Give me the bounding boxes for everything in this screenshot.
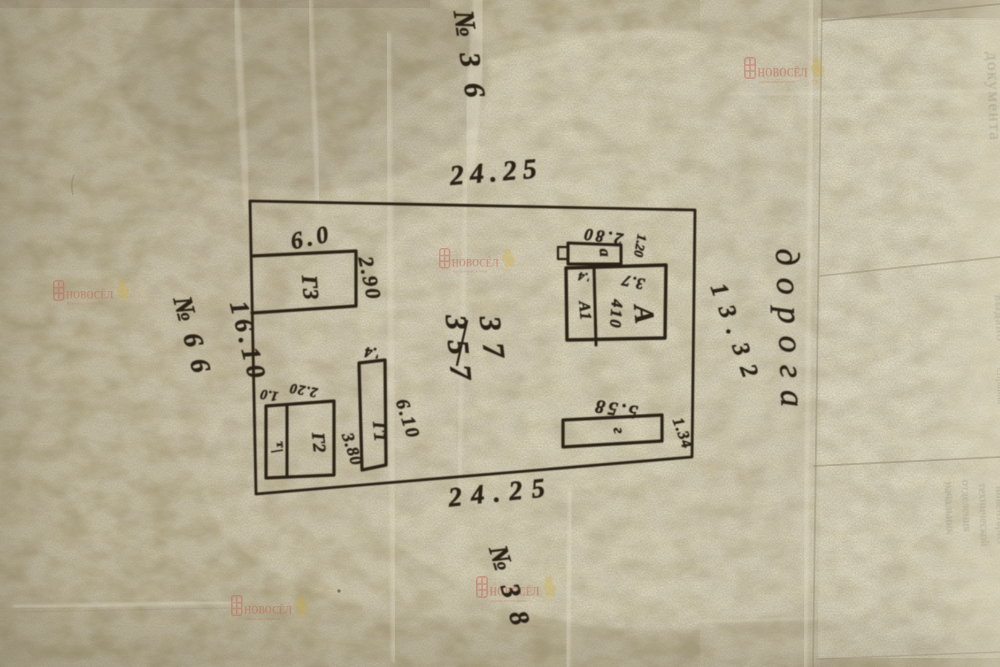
svg-text:'.4: '.4 <box>363 343 381 361</box>
svg-text:37: 37 <box>473 313 512 372</box>
svg-text:357: 357 <box>439 312 478 391</box>
svg-text:'.4: '.4 <box>577 269 591 285</box>
svg-text:Г1: Г1 <box>369 420 391 443</box>
svg-text:410: 410 <box>606 298 626 330</box>
svg-text:1.0: 1.0 <box>259 386 279 404</box>
svg-text:А1: А1 <box>575 300 594 321</box>
svg-text:Г3: Г3 <box>297 273 324 300</box>
svg-text:Г2: Г2 <box>308 431 330 454</box>
svg-text:начальник: начальник <box>942 482 958 535</box>
svg-text:технической: технической <box>976 483 992 548</box>
svg-text:дорога: дорога <box>768 248 811 420</box>
svg-text:А: А <box>627 302 660 325</box>
svg-text:а: а <box>596 248 614 257</box>
svg-text:отделения: отделения <box>959 480 975 533</box>
